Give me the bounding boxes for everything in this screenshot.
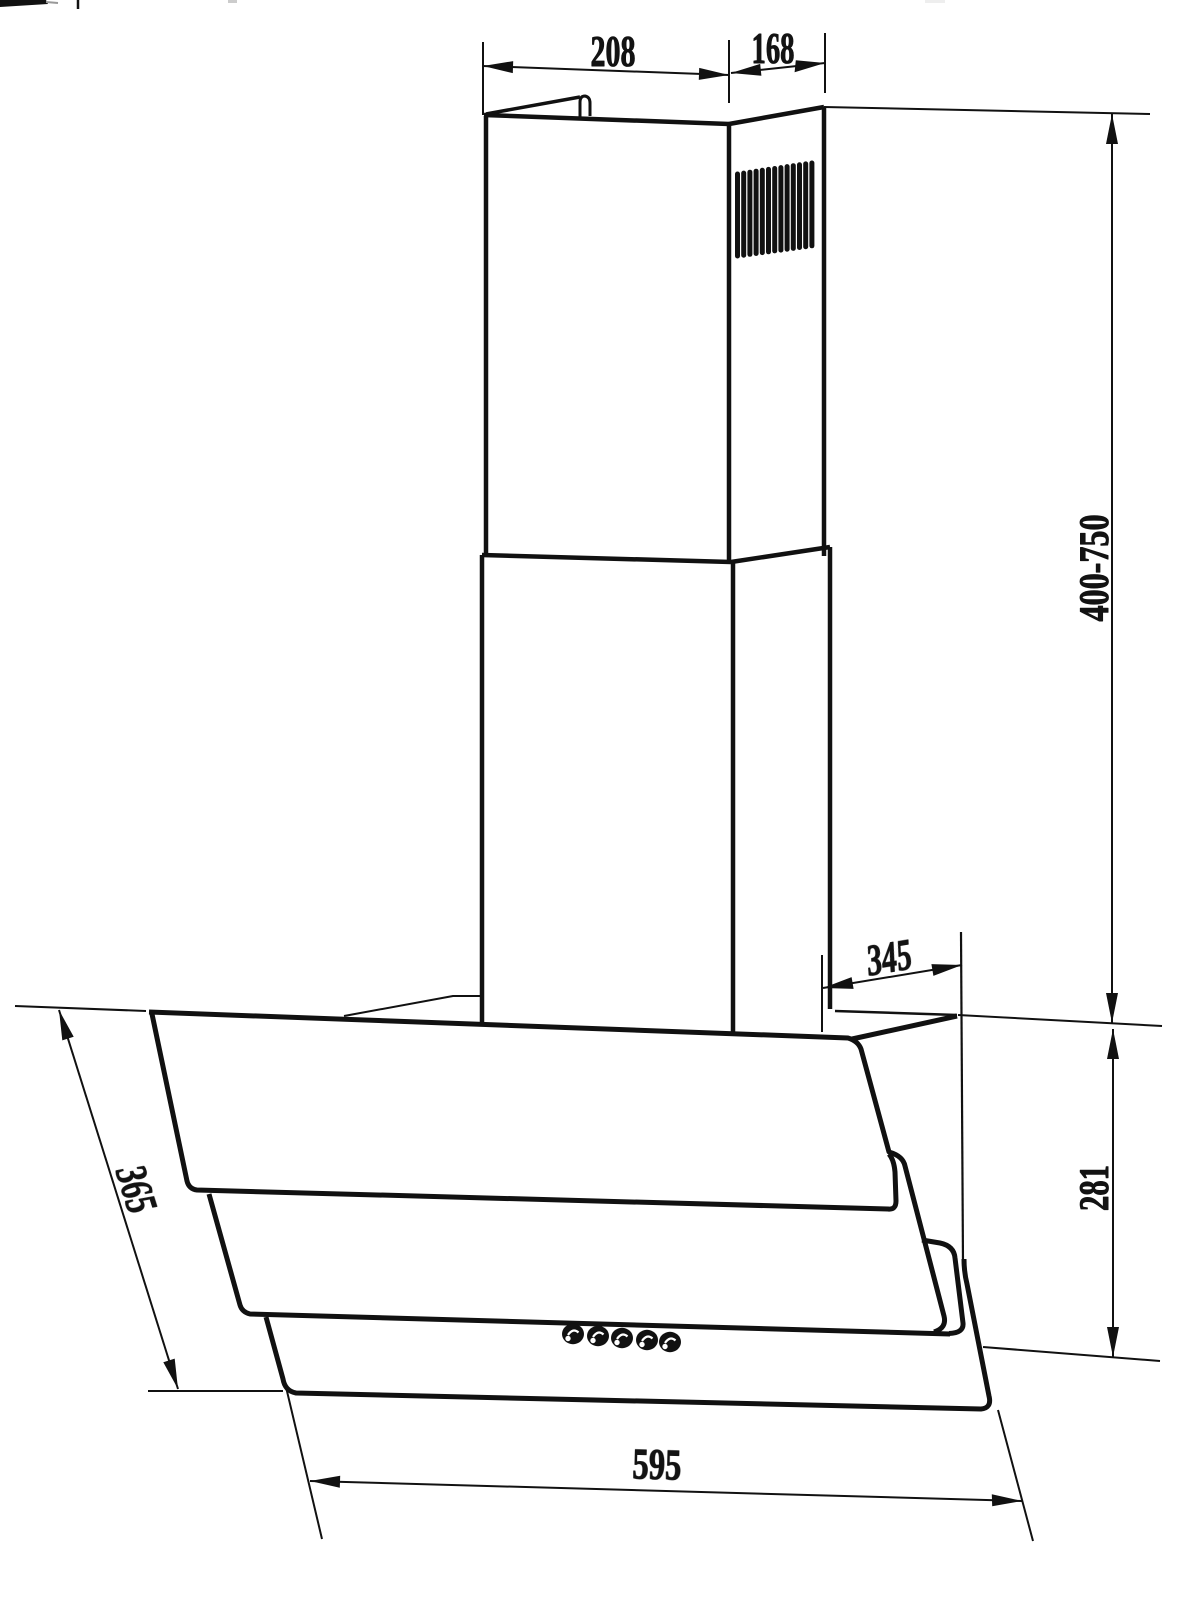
svg-text:595: 595 xyxy=(632,1439,682,1489)
svg-text:281: 281 xyxy=(1072,1165,1118,1211)
svg-text:168: 168 xyxy=(752,24,795,73)
svg-text:400-750: 400-750 xyxy=(1072,515,1118,622)
svg-text:345: 345 xyxy=(862,930,915,986)
svg-text:208: 208 xyxy=(591,27,636,76)
